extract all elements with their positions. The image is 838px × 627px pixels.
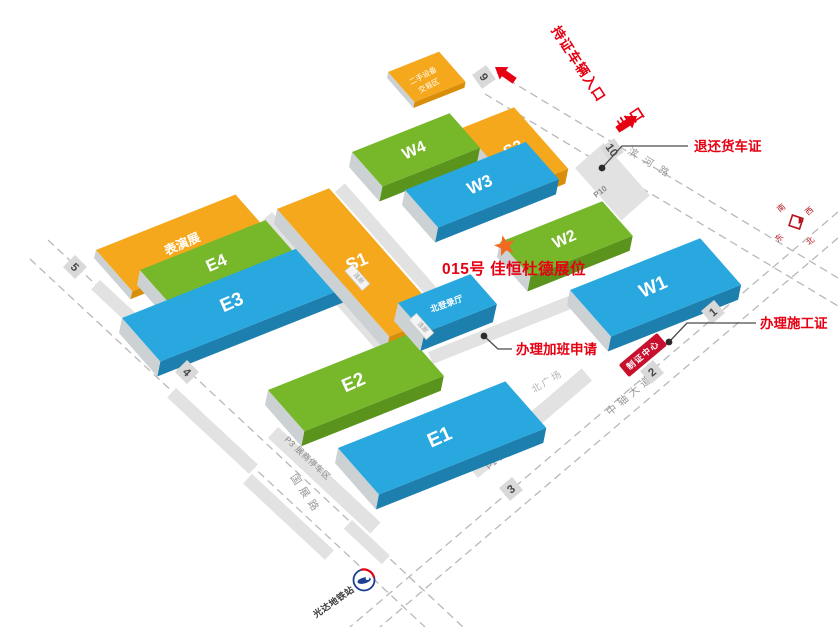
leader-dot [481, 333, 488, 340]
compass-east: 东 [773, 231, 786, 244]
secondhand-trading-area: 二手设备交易区 [387, 52, 466, 108]
construction-label: 办理施工证 [760, 315, 828, 331]
expo-map-canvas: 滨河路中轴大道国展路 P10P1 贵宾停车区P3 展商停车区北广场 二手设备交易… [0, 0, 838, 627]
compass-west: 西 [803, 205, 815, 217]
compass: 南西东北 [773, 201, 817, 247]
walkway-strip [243, 474, 334, 560]
gate-3: 3 [499, 477, 523, 501]
leader-dot [666, 339, 673, 346]
gate-5: 5 [63, 255, 87, 279]
metro-station [354, 569, 375, 590]
gate-9: 9 [472, 65, 496, 89]
entrance-label: 持证车辆入口 [548, 23, 609, 105]
compass-south: 南 [775, 201, 788, 214]
exit-label: 出口 [614, 104, 648, 134]
booth-label: 015号 佳恒杜德展位 [442, 259, 586, 278]
metro-station-label: 光达地铁站 [310, 583, 356, 620]
leader-line [669, 323, 756, 342]
metro-logo-notch [366, 576, 370, 580]
overtime-label: 办理加班申请 [516, 341, 597, 357]
compass-north: 北 [804, 235, 816, 247]
truck-pass-label: 退还货车证 [694, 138, 762, 154]
expo-map: 滨河路中轴大道国展路 P10P1 贵宾停车区P3 展商停车区北广场 二手设备交易… [0, 0, 838, 627]
leader-dot [599, 165, 606, 172]
walkway-strip [167, 388, 258, 474]
